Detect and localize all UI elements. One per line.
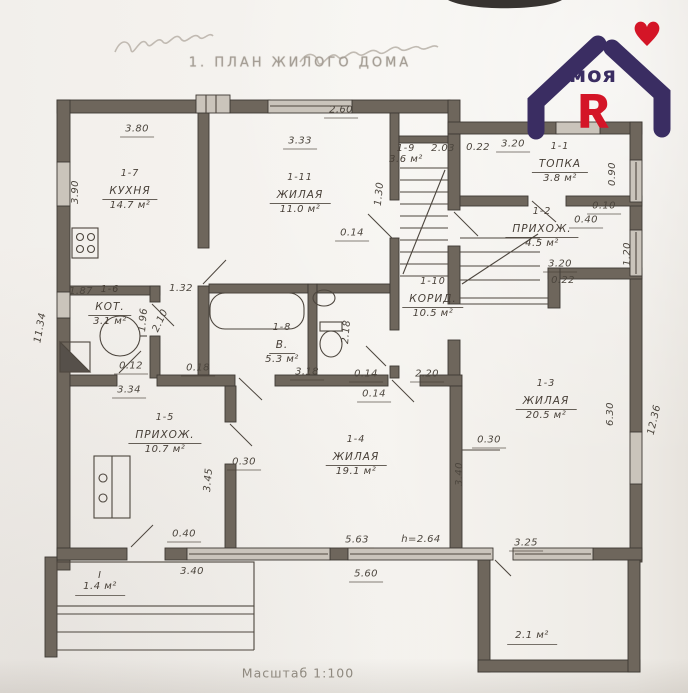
scale-note: Масштаб 1:100 [242, 666, 354, 681]
staircase [400, 168, 540, 284]
bathtub-symbol [210, 293, 304, 329]
agency-logo: моя Я [536, 22, 662, 139]
logo-right-arm [612, 48, 662, 129]
stove-symbol [72, 228, 98, 258]
logo-mirrored-letter: Я [576, 85, 611, 139]
boiler-symbol [100, 316, 147, 356]
floor-plan-drawing: моя Я [0, 0, 688, 693]
chimney-symbol [60, 342, 90, 372]
wardrobe-symbol [94, 456, 130, 518]
heart-icon [635, 22, 660, 46]
logo-word: моя [569, 63, 617, 87]
walls [45, 95, 642, 672]
page-title: 1. ПЛАН ЖИЛОГО ДОМА [189, 56, 411, 71]
door-leaves [119, 201, 556, 576]
scan-smudge [448, 0, 562, 8]
scanned-floor-plan-page: моя Я 1. ПЛАН ЖИЛОГО ДОМА 1-7КУХНЯ14.7 м… [0, 0, 688, 693]
fixtures-and-details [57, 95, 636, 650]
